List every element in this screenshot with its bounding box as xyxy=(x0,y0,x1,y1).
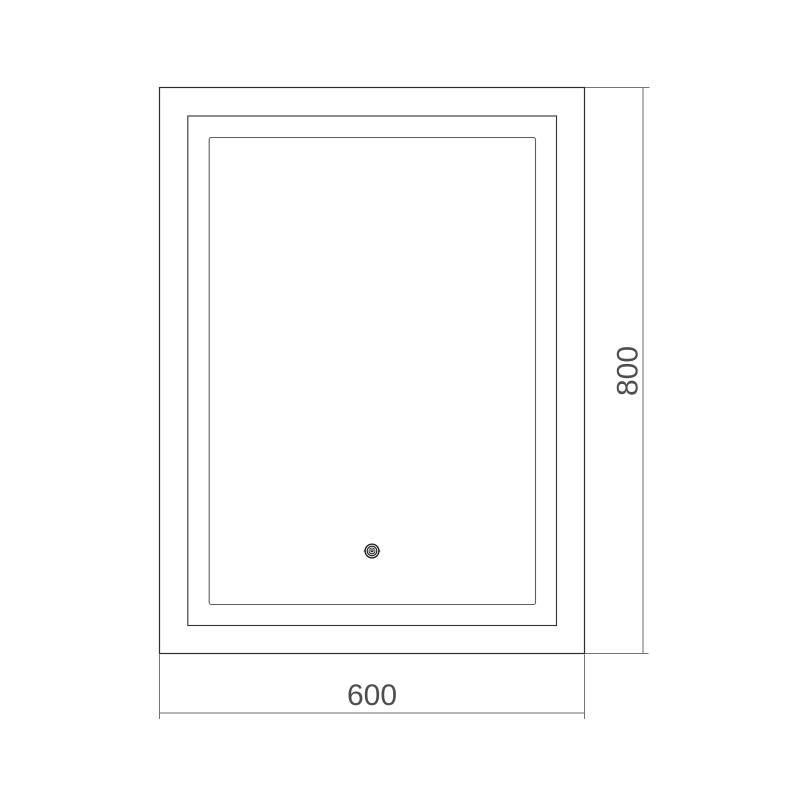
svg-text:800: 800 xyxy=(612,346,645,396)
svg-text:600: 600 xyxy=(347,679,397,712)
